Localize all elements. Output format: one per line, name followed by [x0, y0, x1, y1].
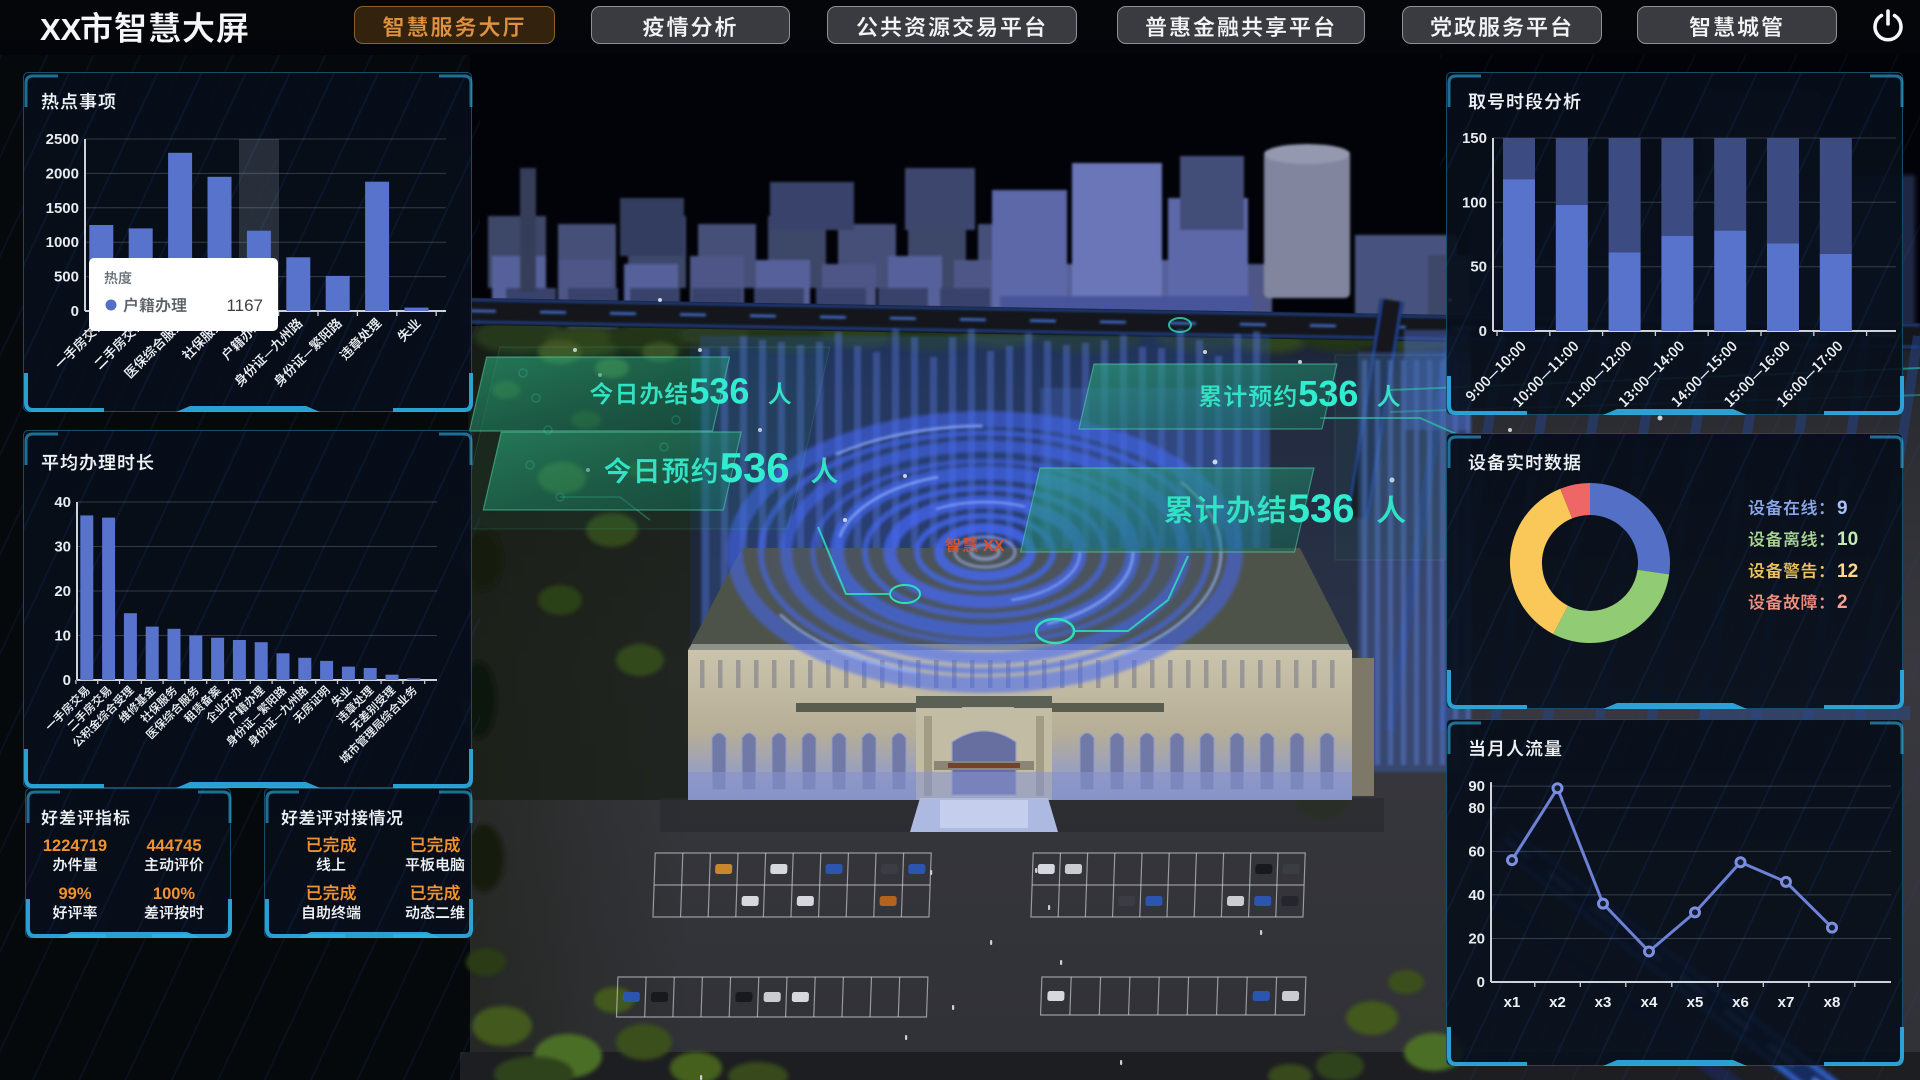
svg-text:536: 536	[1288, 487, 1355, 531]
svg-text:10: 10	[1837, 529, 1858, 550]
svg-text:2: 2	[1837, 592, 1848, 613]
svg-text:1224719: 1224719	[43, 837, 107, 855]
svg-text:x4: x4	[1641, 994, 1658, 1011]
svg-text:536: 536	[689, 371, 749, 412]
svg-text:0: 0	[1479, 323, 1487, 340]
svg-text:2500: 2500	[46, 131, 79, 148]
svg-text:10: 10	[54, 628, 71, 645]
svg-text:x5: x5	[1687, 994, 1704, 1011]
svg-text:x1: x1	[1504, 994, 1521, 1011]
svg-text:60: 60	[1468, 843, 1485, 860]
svg-text:1500: 1500	[46, 200, 79, 217]
svg-text:0: 0	[71, 303, 79, 320]
svg-text:100: 100	[1462, 194, 1487, 211]
svg-text:90: 90	[1468, 778, 1485, 795]
svg-text:50: 50	[1470, 259, 1487, 276]
svg-text:444745: 444745	[146, 837, 201, 855]
svg-text:0: 0	[63, 672, 71, 689]
svg-text:40: 40	[54, 494, 71, 511]
svg-text:9: 9	[1837, 498, 1848, 519]
svg-text:0: 0	[1477, 974, 1485, 991]
svg-text:150: 150	[1462, 130, 1487, 147]
svg-text:2000: 2000	[46, 165, 79, 182]
svg-text:x6: x6	[1732, 994, 1749, 1011]
svg-text:536: 536	[1298, 373, 1358, 414]
svg-text:x2: x2	[1549, 994, 1566, 1011]
svg-text:100%: 100%	[153, 885, 196, 903]
svg-text:500: 500	[54, 269, 79, 286]
svg-text:99%: 99%	[58, 885, 91, 903]
svg-text:20: 20	[1468, 931, 1485, 948]
svg-text:1167: 1167	[226, 296, 263, 315]
svg-text:40: 40	[1468, 887, 1485, 904]
svg-text:x3: x3	[1595, 994, 1612, 1011]
svg-text:80: 80	[1468, 800, 1485, 817]
svg-text:30: 30	[54, 539, 71, 556]
svg-text:XX: XX	[40, 12, 82, 47]
svg-text:20: 20	[54, 583, 71, 600]
svg-text:x8: x8	[1824, 994, 1841, 1011]
svg-text:12: 12	[1837, 561, 1858, 582]
svg-text:1000: 1000	[46, 234, 79, 251]
svg-text:x7: x7	[1778, 994, 1795, 1011]
svg-text:536: 536	[720, 444, 790, 491]
